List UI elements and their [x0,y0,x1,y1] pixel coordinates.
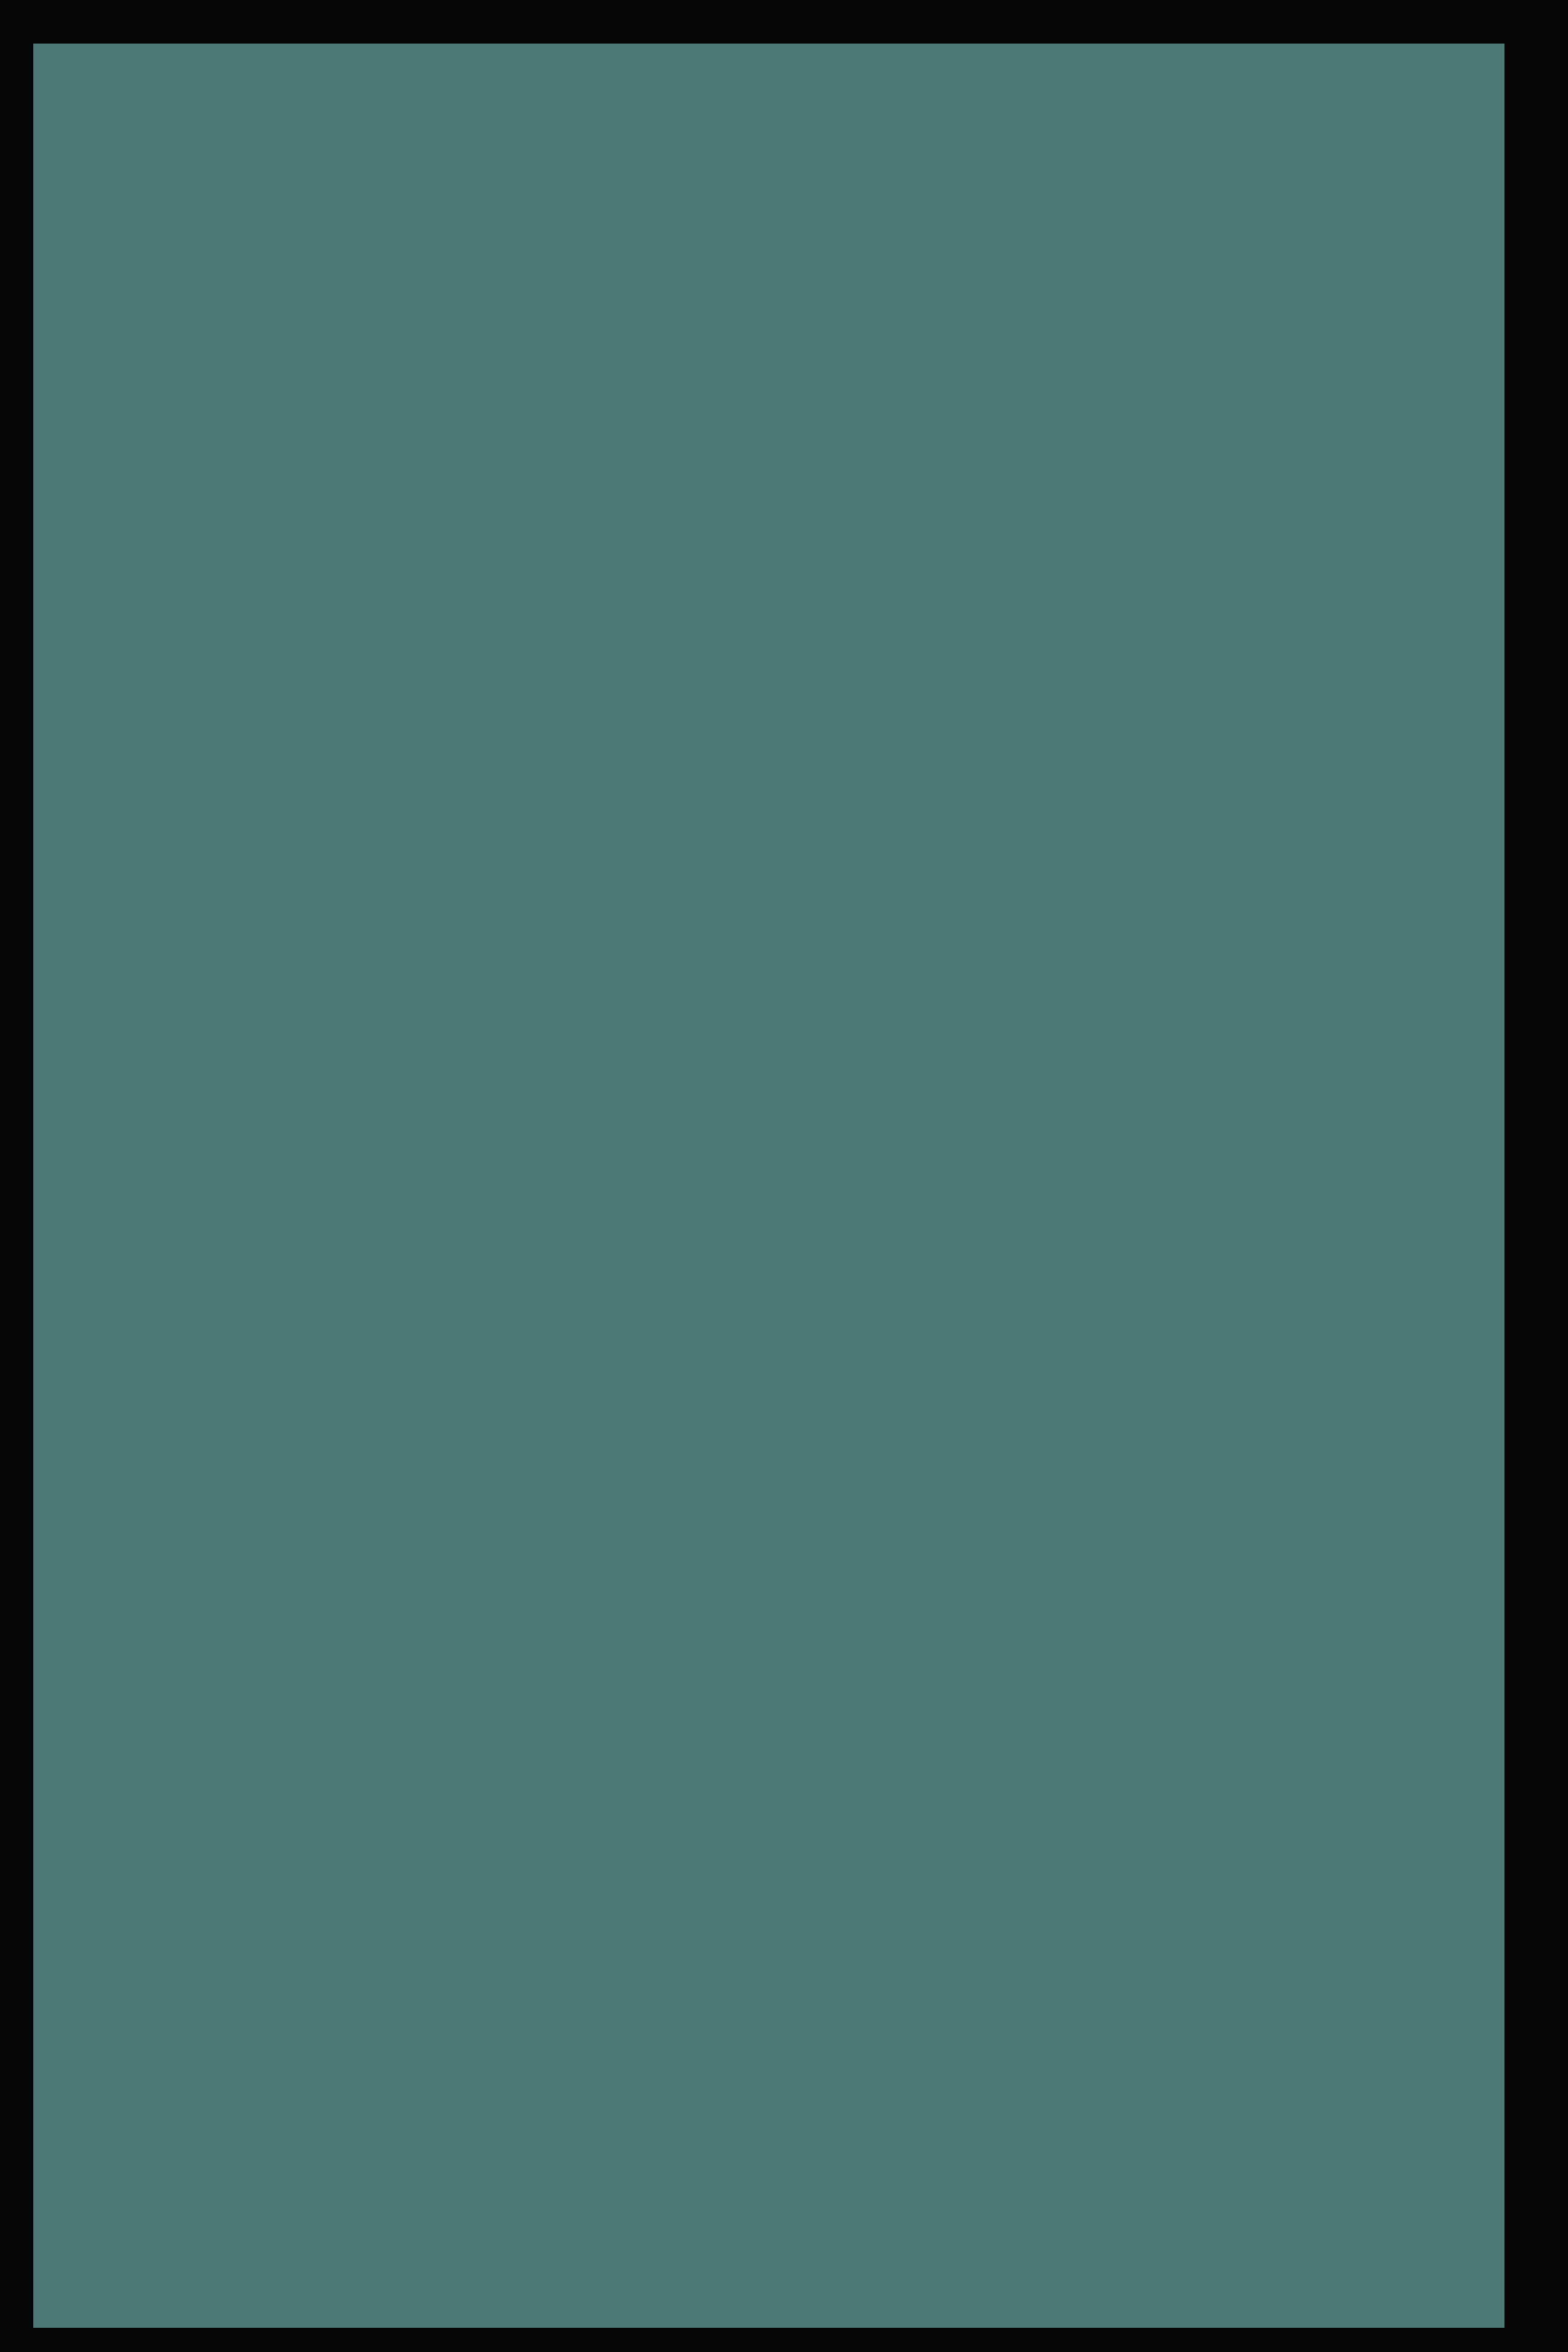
aerial-photo [0,0,1568,2352]
slide-scan [0,0,1568,2352]
photo-base [33,44,1504,2328]
